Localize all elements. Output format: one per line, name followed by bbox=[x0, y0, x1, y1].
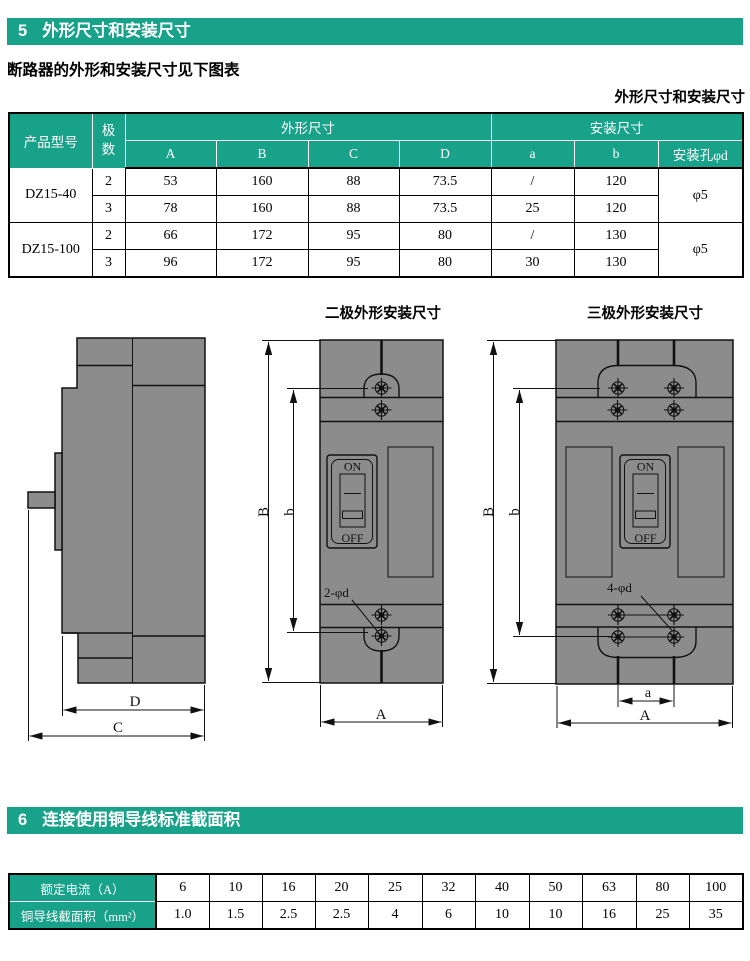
hole-cell: φ5 bbox=[658, 168, 743, 223]
dimension-label-a: a bbox=[645, 686, 652, 701]
table-cell: 160 bbox=[216, 168, 308, 196]
model-cell: DZ15-100 bbox=[9, 223, 92, 278]
wire-area-row: 铜导线截面积（mm²）1.01.52.52.5461010162535 bbox=[9, 902, 743, 930]
table-cell: 25 bbox=[636, 902, 689, 930]
three-pole-drawing-title: 三极外形安装尺寸 bbox=[550, 302, 740, 323]
table-cell: 160 bbox=[216, 196, 308, 223]
side-view-drawing: D C bbox=[28, 338, 205, 741]
table-cell: 16 bbox=[262, 874, 315, 902]
dimension-label-b: b bbox=[282, 508, 298, 516]
header-poles: 极数 bbox=[92, 113, 125, 168]
table-cell: 3 bbox=[92, 250, 125, 278]
hole-callout-3p: 4-φd bbox=[607, 580, 632, 595]
table-cell: 120 bbox=[574, 168, 658, 196]
table-cell: 88 bbox=[308, 196, 399, 223]
header-dim-letter: D bbox=[399, 141, 491, 169]
table-cell: 1.0 bbox=[156, 902, 209, 930]
table-cell: 10 bbox=[475, 902, 529, 930]
dimension-table: 产品型号 极数 外形尺寸 安装尺寸 ABCDab安装孔φd DZ15-40253… bbox=[8, 112, 744, 278]
header-dim-letter: A bbox=[125, 141, 216, 169]
table-cell: 172 bbox=[216, 250, 308, 278]
table-cell: 130 bbox=[574, 250, 658, 278]
table-row: 3781608873.525120 bbox=[9, 196, 743, 223]
table-cell: 100 bbox=[689, 874, 743, 902]
table-cell: 95 bbox=[308, 250, 399, 278]
table-cell: 88 bbox=[308, 168, 399, 196]
table-cell: 63 bbox=[582, 874, 636, 902]
dimension-label-c: C bbox=[113, 720, 123, 736]
datasheet-page: 5外形尺寸和安装尺寸 断路器的外形和安装尺寸见下图表 外形尺寸和安装尺寸 产品型… bbox=[0, 0, 750, 961]
two-pole-drawing: ON OFF 2-φd B b A bbox=[256, 340, 443, 727]
header-mounting-hole: 安装孔φd bbox=[658, 141, 743, 169]
table-cell: 40 bbox=[475, 874, 529, 902]
hole-callout-2p: 2-φd bbox=[324, 585, 349, 600]
table-cell: 10 bbox=[529, 902, 582, 930]
table-cell: 80 bbox=[636, 874, 689, 902]
table-cell: 10 bbox=[209, 874, 262, 902]
table-cell: 32 bbox=[422, 874, 475, 902]
table-row: DZ15-402531608873.5/120φ5 bbox=[9, 168, 743, 196]
dimension-label-B: B bbox=[481, 507, 497, 517]
table-cell: 53 bbox=[125, 168, 216, 196]
rated-current-row: 额定电流（A）6101620253240506380100 bbox=[9, 874, 743, 902]
table-cell: 16 bbox=[582, 902, 636, 930]
table-cell: 78 bbox=[125, 196, 216, 223]
table-cell: 96 bbox=[125, 250, 216, 278]
table-cell: 6 bbox=[422, 902, 475, 930]
table-cell: / bbox=[491, 223, 574, 250]
section-number: 6 bbox=[7, 811, 42, 829]
switch-off-label: OFF bbox=[341, 531, 363, 545]
section-number: 5 bbox=[7, 22, 42, 40]
table-cell: 6 bbox=[156, 874, 209, 902]
dimension-label-b: b bbox=[507, 508, 523, 516]
table-cell: 25 bbox=[491, 196, 574, 223]
table-cell: 4 bbox=[368, 902, 422, 930]
model-cell: DZ15-40 bbox=[9, 168, 92, 223]
dimension-label-d: D bbox=[130, 694, 141, 710]
table-cell: 25 bbox=[368, 874, 422, 902]
section-title: 外形尺寸和安装尺寸 bbox=[42, 22, 191, 40]
table-cell: 50 bbox=[529, 874, 582, 902]
table-row: 396172958030130 bbox=[9, 250, 743, 278]
wire-section-table: 额定电流（A）6101620253240506380100铜导线截面积（mm²）… bbox=[8, 873, 744, 930]
table-cell: 20 bbox=[315, 874, 368, 902]
header-dim-letter: a bbox=[491, 141, 574, 169]
header-outline-dims: 外形尺寸 bbox=[125, 113, 491, 141]
technical-drawings: D C ON OFF 2-φd bbox=[0, 330, 750, 760]
switch-on-label: ON bbox=[637, 460, 655, 474]
table-cell: 120 bbox=[574, 196, 658, 223]
table-cell: / bbox=[491, 168, 574, 196]
header-dim-letter: b bbox=[574, 141, 658, 169]
dimension-label-B: B bbox=[256, 507, 272, 517]
table-cell: 130 bbox=[574, 223, 658, 250]
table-cell: 95 bbox=[308, 223, 399, 250]
switch-off-label: OFF bbox=[634, 531, 656, 545]
table-caption: 外形尺寸和安装尺寸 bbox=[615, 86, 746, 107]
table-cell: 80 bbox=[399, 250, 491, 278]
header-mounting-dims: 安装尺寸 bbox=[491, 113, 743, 141]
section-6-header: 6连接使用铜导线标准截面积 bbox=[7, 807, 743, 834]
row-label: 额定电流（A） bbox=[9, 874, 156, 902]
table-cell: 2 bbox=[92, 223, 125, 250]
table-cell: 2.5 bbox=[315, 902, 368, 930]
table-cell: 66 bbox=[125, 223, 216, 250]
switch-on-label: ON bbox=[344, 460, 362, 474]
table-cell: 1.5 bbox=[209, 902, 262, 930]
table-cell: 73.5 bbox=[399, 196, 491, 223]
header-product-model: 产品型号 bbox=[9, 113, 92, 168]
table-cell: 80 bbox=[399, 223, 491, 250]
table-row: DZ15-1002661729580/130φ5 bbox=[9, 223, 743, 250]
table-cell: 3 bbox=[92, 196, 125, 223]
table-cell: 35 bbox=[689, 902, 743, 930]
intro-text: 断路器的外形和安装尺寸见下图表 bbox=[7, 58, 240, 80]
table-cell: 2 bbox=[92, 168, 125, 196]
section-5-header: 5外形尺寸和安装尺寸 bbox=[7, 18, 743, 45]
section-title: 连接使用铜导线标准截面积 bbox=[42, 811, 240, 829]
table-cell: 73.5 bbox=[399, 168, 491, 196]
header-dim-letter: C bbox=[308, 141, 399, 169]
table-cell: 2.5 bbox=[262, 902, 315, 930]
hole-cell: φ5 bbox=[658, 223, 743, 278]
dimension-label-A: A bbox=[376, 707, 387, 723]
table-cell: 30 bbox=[491, 250, 574, 278]
three-pole-drawing: ON OFF 4-φd a A bbox=[481, 340, 733, 728]
breaker-handle-tip bbox=[28, 492, 55, 508]
two-pole-drawing-title: 二极外形安装尺寸 bbox=[303, 302, 463, 323]
header-dim-letter: B bbox=[216, 141, 308, 169]
row-label: 铜导线截面积（mm²） bbox=[9, 902, 156, 930]
table-cell: 172 bbox=[216, 223, 308, 250]
breaker-handle bbox=[55, 453, 62, 550]
dimension-label-A: A bbox=[640, 708, 651, 724]
